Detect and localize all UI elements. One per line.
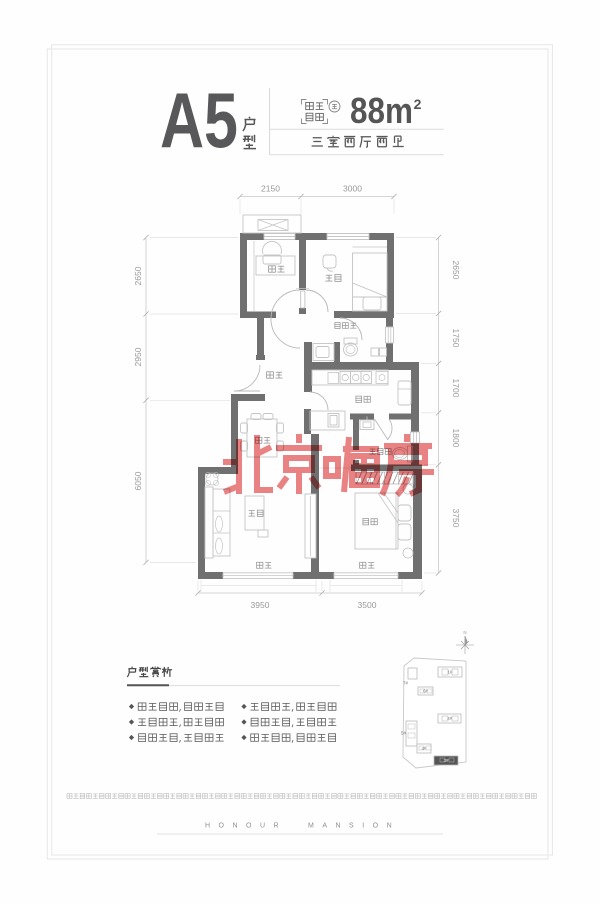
svg-text:HONOUR MANSION: HONOUR MANSION (205, 823, 400, 830)
svg-text:1800: 1800 (451, 429, 461, 448)
svg-text:3950: 3950 (251, 600, 270, 610)
svg-text:A5: A5 (160, 76, 238, 164)
svg-text:2: 2 (414, 96, 422, 112)
svg-text:2950: 2950 (133, 347, 143, 366)
svg-text:7#: 7# (403, 681, 409, 686)
svg-text:5#: 5# (401, 731, 407, 736)
svg-text:2650: 2650 (133, 266, 143, 285)
svg-text:3500: 3500 (358, 600, 377, 610)
svg-text:3#: 3# (443, 758, 449, 763)
svg-text:3000: 3000 (343, 184, 362, 194)
svg-text:3750: 3750 (451, 509, 461, 528)
svg-text:6050: 6050 (133, 471, 143, 490)
svg-text:N: N (463, 630, 466, 635)
svg-text:88m: 88m (350, 90, 413, 131)
svg-text:1700: 1700 (451, 379, 461, 398)
svg-text:1750: 1750 (451, 329, 461, 348)
svg-text:2150: 2150 (261, 184, 280, 194)
svg-text:2650: 2650 (451, 261, 461, 280)
